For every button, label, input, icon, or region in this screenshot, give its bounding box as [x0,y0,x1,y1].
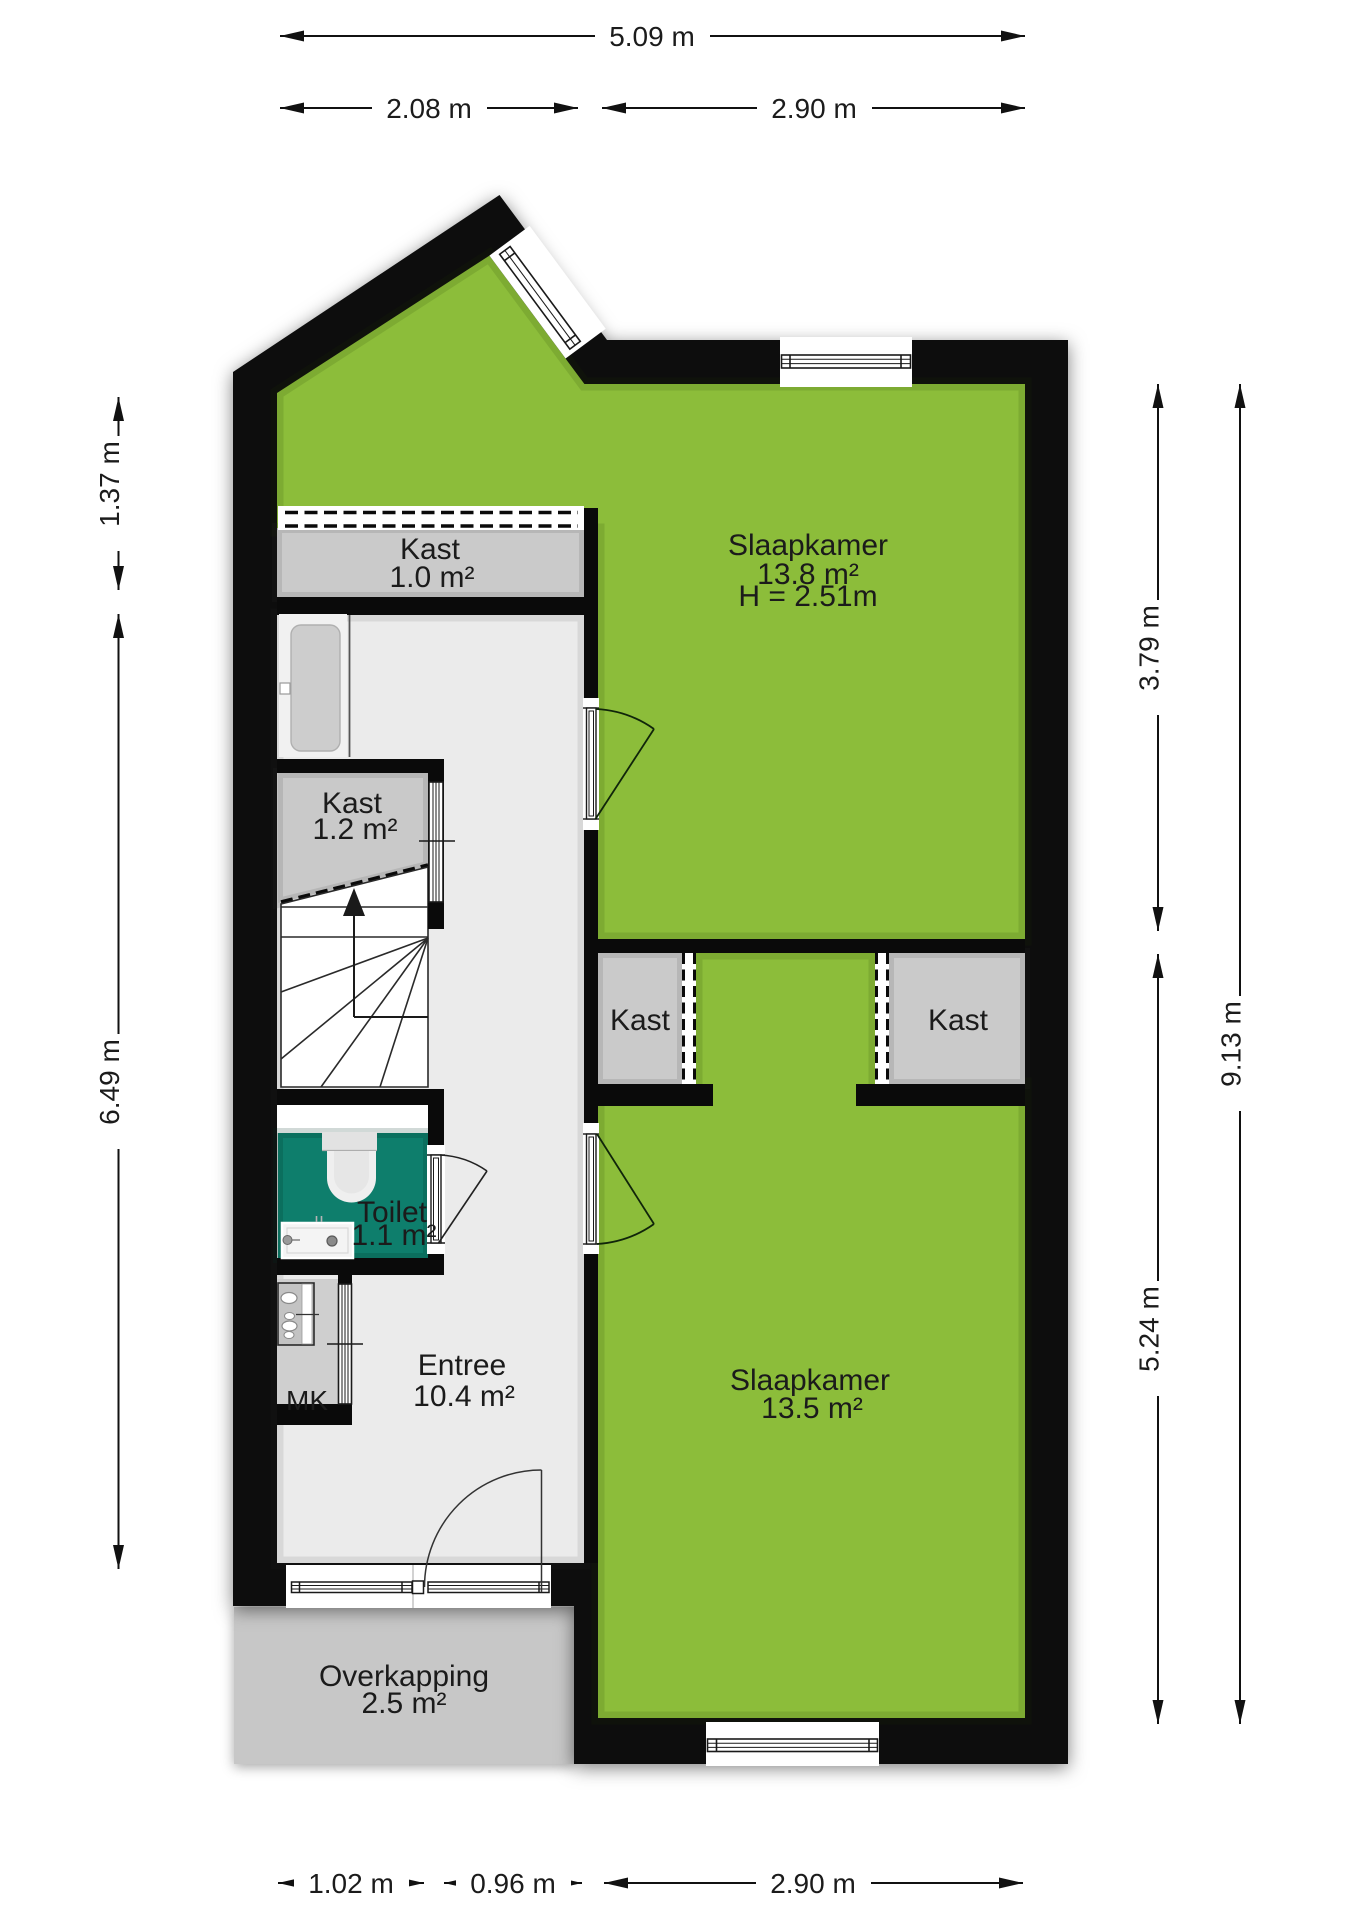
svg-text:Kast: Kast [928,1004,989,1037]
svg-text:MK: MK [286,1385,328,1416]
svg-text:3.79 m: 3.79 m [1134,605,1165,691]
svg-text:Entree: Entree [418,1349,506,1382]
svg-text:1.0 m²: 1.0 m² [389,561,474,594]
svg-text:Kast: Kast [610,1004,671,1037]
svg-text:1.37 m: 1.37 m [94,441,125,527]
svg-text:5.24 m: 5.24 m [1134,1286,1165,1372]
svg-text:2.90 m: 2.90 m [771,93,857,124]
svg-text:2.5 m²: 2.5 m² [361,1687,446,1720]
svg-text:6.49 m: 6.49 m [94,1039,125,1125]
svg-text:9.13 m: 9.13 m [1216,1001,1247,1087]
svg-text:1.1 m²: 1.1 m² [351,1219,436,1252]
svg-text:1.2 m²: 1.2 m² [312,813,397,846]
svg-text:13.5 m²: 13.5 m² [761,1392,863,1425]
svg-text:2.90 m: 2.90 m [770,1868,856,1899]
svg-text:2.08 m: 2.08 m [386,93,472,124]
svg-text:10.4 m²: 10.4 m² [413,1380,515,1413]
svg-text:1.02 m: 1.02 m [308,1868,394,1899]
svg-text:H = 2.51m: H = 2.51m [738,580,877,613]
svg-text:5.09 m: 5.09 m [609,21,695,52]
svg-text:0.96 m: 0.96 m [470,1868,556,1899]
